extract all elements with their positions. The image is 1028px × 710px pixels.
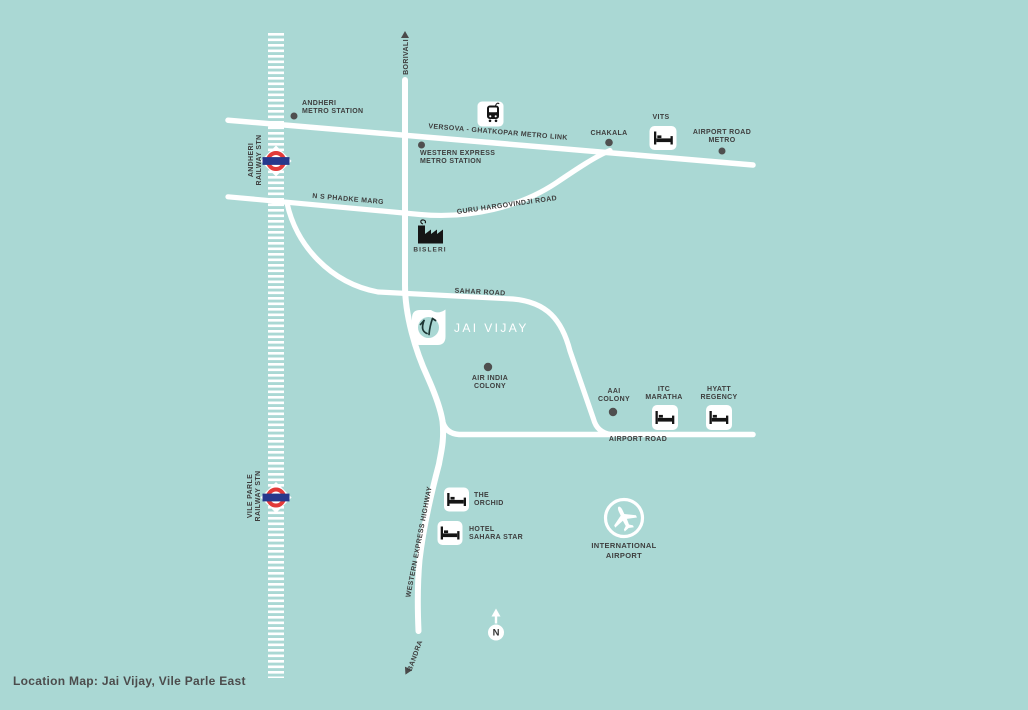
label-line: ANDHERI: [248, 135, 256, 186]
jai-vijay-wordmark: JAI VIJAY: [454, 321, 529, 335]
itc-maratha-hotel-icon: [652, 405, 678, 430]
label-line: INTERNATIONAL: [591, 541, 656, 551]
hyatt-regency-hotel-icon: [706, 405, 732, 430]
factory-icon: [418, 220, 443, 244]
label-line: ANDHERI: [302, 100, 363, 108]
chakala-dot: [605, 139, 613, 147]
chakala-station-label: CHAKALA: [590, 130, 627, 138]
the-orchid-hotel-icon: [444, 488, 469, 512]
airport-plane-icon: [606, 500, 643, 537]
andheri-railway-station-label: ANDHERI RAILWAY STN: [248, 135, 264, 186]
label-line: REGENCY: [700, 394, 737, 402]
bisleri-label: BISLERI: [413, 246, 446, 253]
aai-colony-label: AAI COLONY: [598, 388, 630, 404]
andheri-railway-roundel-icon: [260, 145, 291, 176]
map-graphics: [0, 0, 1028, 710]
itc-maratha-hotel-label: ITC MARATHA: [645, 386, 682, 402]
label-line: AIR INDIA: [472, 375, 508, 383]
label-line: RAILWAY STN: [255, 471, 263, 522]
jai-vijay-marker: [412, 310, 446, 346]
western-express-metro-dot: [418, 142, 425, 149]
label-line: AIRPORT ROAD: [693, 129, 751, 137]
hotel-sahara-star-icon: [438, 521, 463, 545]
label-line: COLONY: [598, 396, 630, 404]
label-line: METRO STATION: [302, 108, 363, 116]
label-line: COLONY: [472, 383, 508, 391]
location-map: ANDHERI RAILWAY STN VILE PARLE RAILWAY S…: [0, 0, 1028, 710]
the-orchid-hotel-label: THE ORCHID: [474, 492, 504, 508]
label-line: AIRPORT: [591, 551, 656, 561]
label-line: METRO: [693, 137, 751, 145]
metro-train-icon: [478, 102, 504, 127]
label-line: THE: [474, 492, 504, 500]
western-express-metro-station-label: WESTERN EXPRESS METRO STATION: [420, 150, 495, 166]
label-line: RAILWAY STN: [256, 135, 264, 186]
label-line: ITC: [645, 386, 682, 394]
label-line: WESTERN EXPRESS: [420, 150, 495, 158]
andheri-metro-station-label: ANDHERI METRO STATION: [302, 100, 363, 116]
road-sahar-road: [287, 203, 611, 435]
label-line: METRO STATION: [420, 158, 495, 166]
road-label-airport-road: AIRPORT ROAD: [609, 436, 667, 444]
vile-parle-railway-station-label: VILE PARLE RAILWAY STN: [247, 471, 263, 522]
airport-road-metro-dot: [719, 148, 726, 155]
label-line: ORCHID: [474, 500, 504, 508]
label-line: VILE PARLE: [247, 471, 255, 522]
andheri-metro-dot: [291, 113, 298, 120]
borivali-direction-arrow-icon: [401, 31, 409, 38]
international-airport-label: INTERNATIONAL AIRPORT: [591, 541, 656, 561]
map-caption: Location Map: Jai Vijay, Vile Parle East: [13, 674, 246, 688]
hyatt-regency-hotel-label: HYATT REGENCY: [700, 386, 737, 402]
air-india-colony-label: AIR INDIA COLONY: [472, 375, 508, 391]
label-line: HOTEL: [469, 526, 523, 534]
label-line: HYATT: [700, 386, 737, 394]
label-line: AAI: [598, 388, 630, 396]
north-indicator-label: N: [493, 628, 500, 639]
vits-hotel-icon: [650, 126, 677, 150]
aai-colony-dot: [609, 408, 617, 416]
label-line: MARATHA: [645, 394, 682, 402]
vits-hotel-label: VITS: [653, 114, 670, 122]
borivali-direction-label: BORIVALI: [403, 39, 411, 75]
label-line: SAHARA STAR: [469, 534, 523, 542]
vile-parle-railway-roundel-icon: [260, 482, 291, 513]
hotel-sahara-star-label: HOTEL SAHARA STAR: [469, 526, 523, 542]
airport-road-metro-label: AIRPORT ROAD METRO: [693, 129, 751, 145]
air-india-colony-dot: [484, 363, 492, 371]
